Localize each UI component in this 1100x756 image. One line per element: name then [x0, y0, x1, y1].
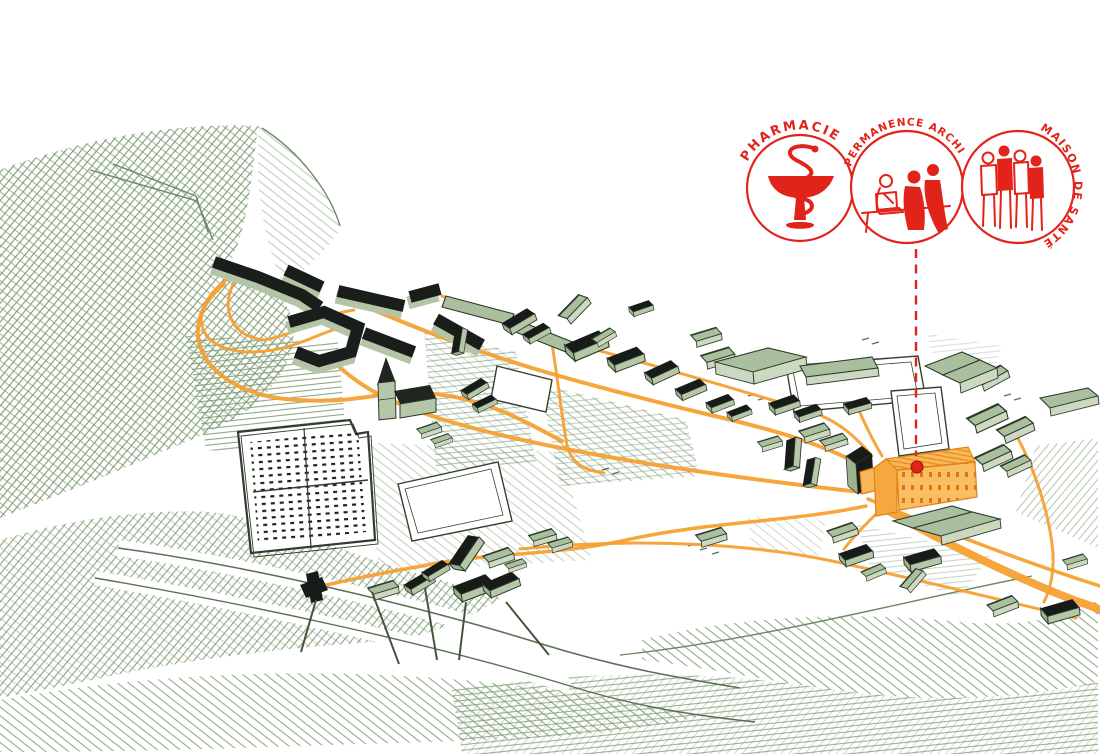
highlighted-building-maison-de-sante	[860, 447, 977, 516]
vignette-maison-de-sante: MAISON DE SANTÉ	[962, 121, 1084, 251]
map-canvas: PHARMACIE PERMANENCE ARCHI	[0, 0, 1100, 756]
cemetery	[238, 420, 378, 557]
vignette-permanence-archi: PERMANENCE ARCHI	[842, 116, 967, 243]
vignette-pharmacie: PHARMACIE	[738, 118, 853, 241]
callout-dot	[911, 461, 923, 473]
illustrated-village-map: PHARMACIE PERMANENCE ARCHI	[0, 0, 1100, 756]
